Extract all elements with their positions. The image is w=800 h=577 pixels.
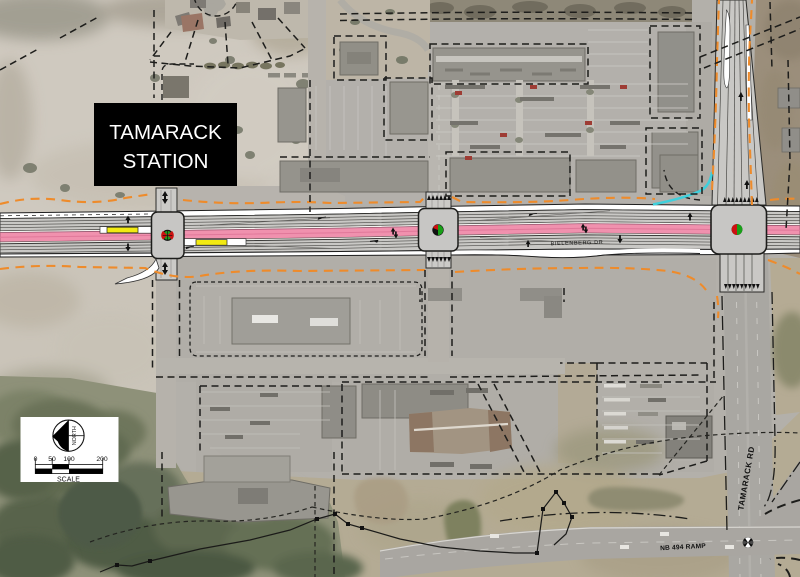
svg-text:200: 200 <box>96 456 108 463</box>
svg-text:SCALE: SCALE <box>57 477 80 484</box>
svg-text:STATION: STATION <box>123 150 209 173</box>
svg-text:100: 100 <box>63 456 75 463</box>
svg-text:NORTH: NORTH <box>72 426 78 445</box>
svg-text:0: 0 <box>34 456 38 463</box>
svg-text:50: 50 <box>48 456 56 463</box>
svg-text:TAMARACK: TAMARACK <box>109 121 222 144</box>
